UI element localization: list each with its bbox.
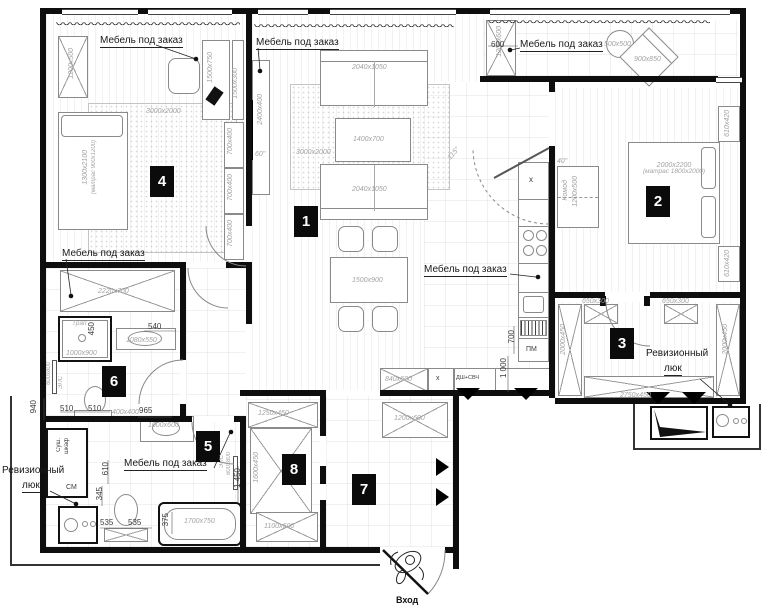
closet-shelf-650x300 xyxy=(664,304,698,324)
dim: 450 xyxy=(88,322,96,335)
dim: 500x500 xyxy=(604,41,631,48)
burner xyxy=(523,245,534,256)
dim: 1300x2100 xyxy=(82,150,89,185)
dim: 1500x300 xyxy=(232,68,239,99)
towel-rail-room6 xyxy=(52,360,57,394)
person-leg xyxy=(395,569,408,585)
dim: ДШ+СВЧ xyxy=(456,376,479,382)
wall xyxy=(445,547,459,553)
dim: 1500x900 xyxy=(352,277,383,284)
room-number-2: 2 xyxy=(646,186,670,217)
dim: x xyxy=(436,375,440,382)
wall xyxy=(453,396,459,569)
door-leaf-entrance xyxy=(383,550,428,594)
room-number-3: 3 xyxy=(610,328,634,359)
dim: x xyxy=(529,176,533,184)
floor-corridor xyxy=(186,268,246,416)
wall xyxy=(549,146,555,398)
dim: СМ xyxy=(66,484,77,491)
wall xyxy=(320,466,326,484)
dim: 535 xyxy=(128,519,141,527)
dim: 2400x400 xyxy=(257,94,264,125)
dim: 3000x2000 xyxy=(296,149,331,156)
dim: 600x800 xyxy=(226,452,232,475)
dim: 1000x900 xyxy=(66,350,97,357)
dim: 700x400 xyxy=(227,128,234,155)
sofa-top xyxy=(320,50,428,106)
dim: Комод xyxy=(562,180,569,201)
dim: шкаф xyxy=(64,438,70,454)
riser-marker xyxy=(456,388,480,400)
outer-boundary xyxy=(10,564,380,566)
dim: 610 xyxy=(102,462,110,475)
dim: 650x300 xyxy=(582,298,609,305)
wall xyxy=(740,8,746,404)
wall xyxy=(549,82,555,92)
dim: 3000x2000 xyxy=(146,108,181,115)
dim: 2000x450 xyxy=(722,324,729,355)
wall xyxy=(46,262,186,268)
tv-console-2400x400 xyxy=(252,60,270,195)
wall xyxy=(480,76,718,82)
dim: Суш. xyxy=(56,438,62,452)
wall xyxy=(644,296,650,306)
dim: 1080x550 xyxy=(126,337,157,344)
dim: 610x420 xyxy=(724,110,731,137)
custom-furniture-label-kitchen: Мебель под заказ xyxy=(424,265,507,277)
dim: (матрас 900x1200) xyxy=(91,140,97,194)
pillow-room4 xyxy=(61,115,123,137)
wall xyxy=(40,547,380,553)
window xyxy=(716,77,742,83)
wall xyxy=(320,500,326,553)
room-number-8: 8 xyxy=(282,454,306,485)
dim: 700 xyxy=(508,330,516,343)
person-arm xyxy=(419,567,423,580)
dim: 1600x450 xyxy=(253,452,260,483)
wall xyxy=(246,8,252,226)
dim: 965 xyxy=(139,407,152,415)
person-figure xyxy=(391,547,425,585)
washer-drum xyxy=(64,518,78,532)
wall xyxy=(226,262,252,268)
dim: 600x800 xyxy=(46,362,52,385)
kitchen-sink-basin xyxy=(523,296,544,313)
dim: 2040x1050 xyxy=(352,186,387,193)
pillow xyxy=(701,196,716,238)
riser-marker xyxy=(682,392,706,404)
riser-marker xyxy=(514,388,538,400)
dim: ЭПС xyxy=(219,455,225,468)
riser-marker xyxy=(436,488,449,506)
meter-dial xyxy=(741,418,747,424)
room-number-6: 6 xyxy=(102,366,126,397)
wall xyxy=(180,268,186,360)
window xyxy=(148,9,232,15)
floor-drain xyxy=(78,334,86,342)
door-arc-entrance xyxy=(428,550,445,594)
inspection-hatch-label-room3: Ревизионный xyxy=(646,349,708,359)
outer-boundary xyxy=(10,396,12,566)
wall xyxy=(320,396,326,436)
dim: 1500x750 xyxy=(207,52,214,83)
riser-box xyxy=(650,406,708,440)
custom-furniture-label-room5: Мебель под заказ xyxy=(124,459,207,471)
dim: Трап xyxy=(72,321,87,328)
inspection-hatch-label-left-line2: люк xyxy=(22,481,40,493)
alcove-wall xyxy=(759,404,761,450)
person-arm xyxy=(391,552,398,565)
dim: 2220x700 xyxy=(98,288,129,295)
burner xyxy=(523,230,534,241)
floor-plan: 1 2 3 4 5 6 7 8 Мебель под заказ Мебель … xyxy=(0,0,770,614)
custom-furniture-label-room6: Мебель под заказ xyxy=(62,249,145,261)
riser-marker xyxy=(436,458,449,476)
curtain xyxy=(56,22,240,29)
dim: 600 xyxy=(491,41,504,49)
burner xyxy=(536,230,547,241)
hood-cell xyxy=(518,162,549,200)
alcove-wall xyxy=(633,404,635,450)
toilet-cistern xyxy=(104,528,148,542)
dim: 1 000 xyxy=(500,358,508,378)
dim: 345 xyxy=(96,487,104,500)
dining-chair xyxy=(338,306,364,332)
dining-chair xyxy=(372,306,398,332)
dim: 1000x600 xyxy=(148,422,179,429)
meter-dial xyxy=(733,418,739,424)
dim: 535 xyxy=(100,519,113,527)
window xyxy=(330,9,456,15)
custom-furniture-label-room4: Мебель под заказ xyxy=(100,36,183,48)
inspection-hatch-label-left: Ревизионный xyxy=(2,466,64,476)
burner xyxy=(536,245,547,256)
bed-dims: 2000x2200 (матрас 1800x2000) xyxy=(632,162,716,176)
entrance-label: Вход xyxy=(396,595,418,605)
person-body xyxy=(391,547,424,577)
custom-furniture-label-balcony: Мебель под заказ xyxy=(520,40,603,52)
dim: 900x850 xyxy=(634,56,661,63)
dim: 40" xyxy=(557,158,567,165)
dim: 650x300 xyxy=(662,298,689,305)
dim: 1200x600 xyxy=(394,415,425,422)
dim: 1100x600 xyxy=(264,523,294,530)
dim: 540 xyxy=(148,323,161,331)
inspection-hatch-label-room3-line2: люк xyxy=(664,364,682,376)
base-x-cell xyxy=(428,368,454,392)
room-number-1: 1 xyxy=(294,206,318,237)
dim: 1200x500 xyxy=(572,176,579,207)
washer-knob xyxy=(90,521,96,527)
dim: 700x400 xyxy=(227,174,234,201)
closet-shelf-650x300 xyxy=(584,304,618,324)
dim: 2000x450 xyxy=(560,324,567,355)
window xyxy=(62,9,138,15)
window xyxy=(258,9,308,15)
dim: 375 xyxy=(162,513,170,526)
wall xyxy=(246,262,252,324)
wall xyxy=(240,390,326,396)
dim: 510 xyxy=(60,405,73,413)
dim: (матрас 1800x2000) xyxy=(632,169,716,176)
dim: 1200x500 xyxy=(68,48,75,79)
dim: 2750x450 xyxy=(620,392,651,399)
curtain xyxy=(488,20,710,27)
dim: 1250x450 xyxy=(258,410,289,417)
dim: 700x400 xyxy=(227,220,234,247)
dim: 1700x750 xyxy=(184,518,215,525)
dim: 60" xyxy=(255,151,265,158)
room-number-7: 7 xyxy=(352,474,376,505)
dim: 510 xyxy=(88,405,101,413)
dish-rack xyxy=(520,320,547,336)
washer-knob xyxy=(82,521,88,527)
custom-furniture-label-room1: Мебель под заказ xyxy=(256,38,339,50)
meter-dial xyxy=(716,414,729,427)
dim: ПМ xyxy=(526,346,537,353)
window xyxy=(490,9,730,15)
curtain xyxy=(254,24,454,31)
dim: ЭПС xyxy=(58,376,64,389)
desk-chair xyxy=(168,58,200,94)
dining-chair xyxy=(372,226,398,252)
dim: 1400x700 xyxy=(353,136,384,143)
dim: 840x600 xyxy=(385,376,412,383)
dining-chair xyxy=(338,226,364,252)
dim: 1 450 xyxy=(234,468,242,488)
person-head xyxy=(406,556,415,565)
dim: 2040x1050 xyxy=(352,64,387,71)
room-number-4: 4 xyxy=(150,166,174,197)
dim: 940 xyxy=(30,400,38,413)
alcove-wall xyxy=(633,448,761,450)
dim: 610x420 xyxy=(724,250,731,277)
dim: 400x400 xyxy=(112,409,139,416)
